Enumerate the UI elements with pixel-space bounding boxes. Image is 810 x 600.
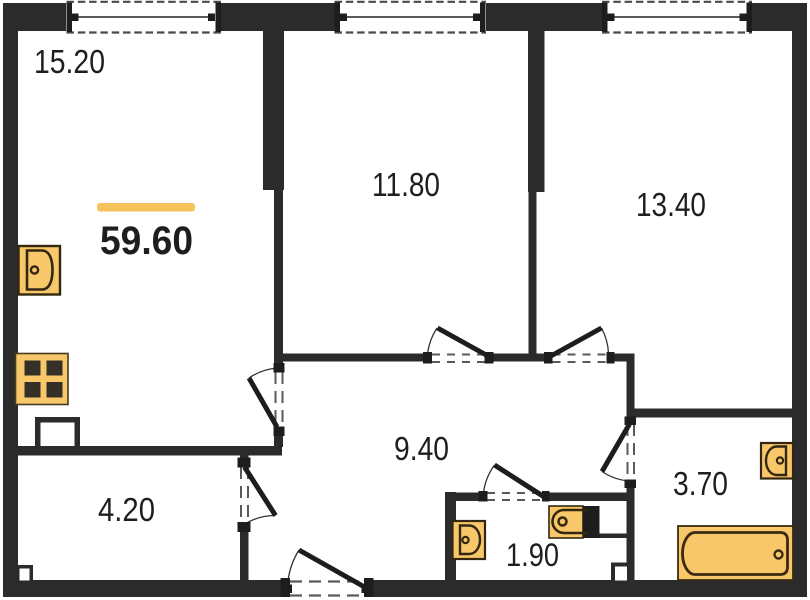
svg-text:59.60: 59.60: [100, 219, 193, 263]
svg-text:4.20: 4.20: [98, 491, 155, 528]
svg-text:3.70: 3.70: [673, 465, 728, 502]
svg-text:9.40: 9.40: [394, 430, 449, 467]
svg-text:11.80: 11.80: [372, 166, 440, 203]
svg-text:15.20: 15.20: [34, 43, 105, 80]
svg-text:13.40: 13.40: [636, 186, 706, 223]
svg-text:1.90: 1.90: [506, 537, 559, 573]
